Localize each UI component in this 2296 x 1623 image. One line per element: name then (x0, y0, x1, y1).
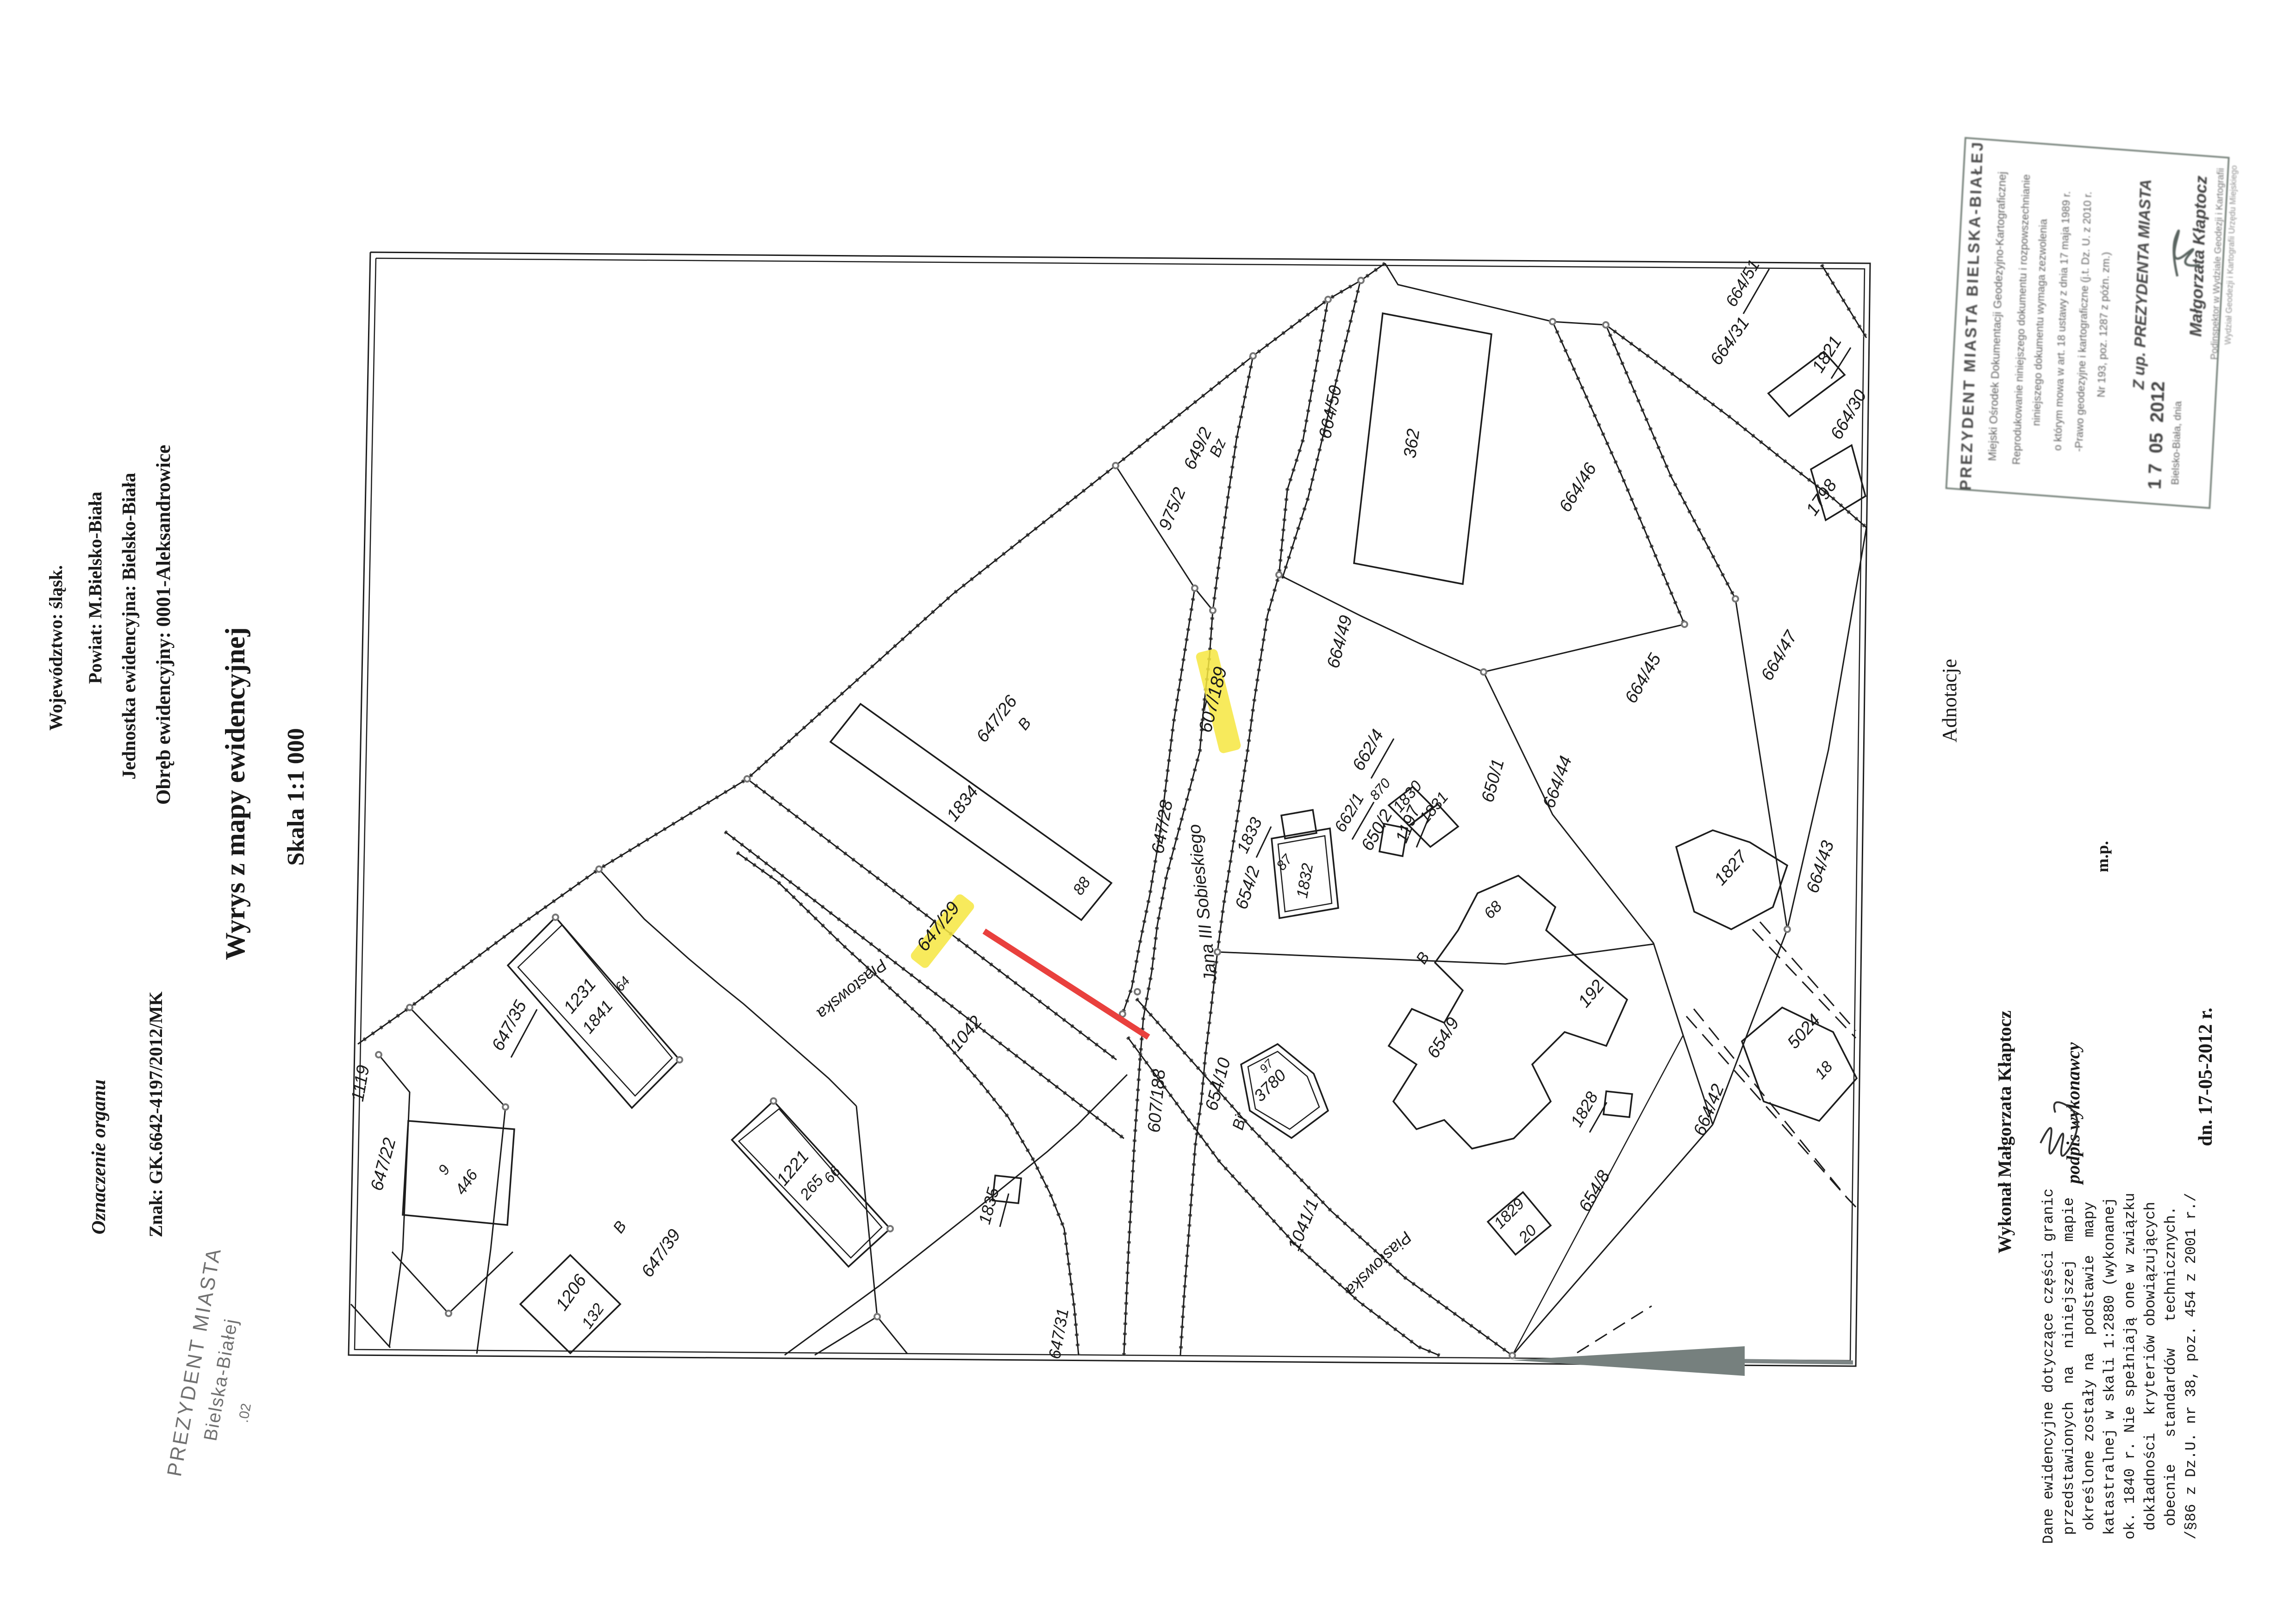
svg-text:B: B (610, 1218, 630, 1237)
svg-text:1832: 1832 (1293, 862, 1317, 899)
svg-text:m.p.: m.p. (2093, 841, 2112, 872)
svg-text:Wykonał Małgorzata Kłaptocz: Wykonał Małgorzata Kłaptocz (1994, 1010, 2015, 1253)
svg-text:określone zostały na podstawi: określone zostały na podstawie mapy (2081, 1202, 2098, 1531)
svg-text:Bielsko-Biała, dnia: Bielsko-Biała, dnia (2169, 401, 2184, 485)
svg-text:647/31: 647/31 (1045, 1307, 1072, 1361)
svg-text:192: 192 (1574, 976, 1608, 1012)
svg-text:64: 64 (612, 974, 633, 994)
svg-text:18: 18 (1811, 1058, 1836, 1083)
svg-text:Piastowska: Piastowska (1342, 1228, 1416, 1300)
svg-text:dn. 17-05-2012 r.: dn. 17-05-2012 r. (2195, 1007, 2216, 1146)
svg-text:975/2: 975/2 (1155, 485, 1190, 533)
svg-text:Znak: GK.6642-4197/2012/MK: Znak: GK.6642-4197/2012/MK (145, 991, 166, 1237)
svg-text:Piastowska: Piastowska (813, 955, 891, 1023)
svg-text:647/26: 647/26 (973, 691, 1021, 746)
svg-text:650/1: 650/1 (1478, 757, 1508, 805)
svg-text:607/188: 607/188 (1144, 1069, 1169, 1134)
svg-text:68: 68 (1480, 897, 1505, 922)
svg-text:1206: 1206 (552, 1271, 591, 1314)
svg-text:Jana III Sobieskiego: Jana III Sobieskiego (1185, 823, 1221, 983)
svg-text:132: 132 (578, 1300, 608, 1331)
svg-text:664/44: 664/44 (1539, 753, 1576, 811)
svg-text:B: B (1413, 949, 1433, 967)
svg-text:664/45: 664/45 (1621, 650, 1665, 706)
svg-text:Dane ewidencyjne dotyczące czę: Dane ewidencyjne dotyczące części granic (2040, 1188, 2057, 1544)
svg-text:87: 87 (1273, 852, 1296, 874)
svg-text:Wyrys z mapy ewidencyjnej: Wyrys z mapy ewidencyjnej (220, 627, 250, 960)
svg-text:664/51: 664/51 (1722, 256, 1764, 310)
svg-text:Skala 1:1 000: Skala 1:1 000 (283, 728, 309, 866)
svg-text:9: 9 (435, 1162, 453, 1178)
svg-text:446: 446 (452, 1166, 481, 1198)
svg-text:647/28: 647/28 (1148, 799, 1177, 855)
svg-text:ok. 1840 r. Nie spełniają one: ok. 1840 r. Nie spełniają one w związku (2121, 1193, 2139, 1540)
svg-text:654/8: 654/8 (1575, 1167, 1614, 1215)
svg-text:88: 88 (1070, 874, 1094, 898)
svg-text:1827: 1827 (1710, 846, 1752, 889)
svg-text:Małgorzata Kłaptocz: Małgorzata Kłaptocz (2186, 175, 2210, 337)
svg-text:niniejszego dokumentu wymaga z: niniejszego dokumentu wymaga zezwolenia (2030, 218, 2049, 426)
svg-text:1834: 1834 (943, 782, 982, 825)
svg-text:664/43: 664/43 (1803, 839, 1838, 896)
svg-text:Nr 193, poz. 1287 z późn. zm.): Nr 193, poz. 1287 z późn. zm.) (2095, 252, 2112, 398)
svg-text:dokładności kryteriów obowiąz: dokładności kryteriów obowiązujących (2142, 1202, 2159, 1531)
svg-text:1042: 1042 (946, 1012, 986, 1055)
svg-text:650/2: 650/2 (1358, 806, 1397, 854)
svg-text:katastralnej w skali 1:2880 (w: katastralnej w skali 1:2880 (wykonanej (2101, 1197, 2118, 1535)
svg-text:1 7 05 2012: 1 7 05 2012 (2145, 381, 2169, 490)
svg-text:654/2: 654/2 (1232, 864, 1264, 912)
svg-text:B: B (1014, 715, 1035, 734)
svg-text:o którym mowa w art. 18 ustawy: o którym mowa w art. 18 ustawy z dnia 17… (2051, 191, 2072, 451)
svg-text:1835: 1835 (975, 1185, 1003, 1226)
svg-text:Jednostka ewidencyjna: Bielsko: Jednostka ewidencyjna: Bielsko-Biała (118, 473, 139, 780)
svg-text:podpis wykonawcy: podpis wykonawcy (2063, 1042, 2084, 1185)
svg-text:-Prawo geodezyjne i kartografi: -Prawo geodezyjne i kartograficzne (j.t.… (2072, 191, 2094, 452)
svg-text:Obręb ewidencyjny: 0001-Aleksa: Obręb ewidencyjny: 0001-Aleksandrowice (153, 445, 175, 805)
svg-text:/§86 z Dz.U. nr 38, poz. 454 z: /§86 z Dz.U. nr 38, poz. 454 z 2001 r./ (2183, 1193, 2200, 1540)
svg-text:przedstawionych na niniejsze: przedstawionych na niniejszej mapie (2060, 1197, 2078, 1535)
svg-text:Oznaczenie organu: Oznaczenie organu (88, 1080, 110, 1235)
svg-text:Adnotacje: Adnotacje (1938, 659, 1961, 743)
svg-text:Województwo: śląsk.: Województwo: śląsk. (45, 565, 66, 731)
svg-text:PREZYDENT MIASTA BIELSKA-BIAŁE: PREZYDENT MIASTA BIELSKA-BIAŁEJ (1957, 140, 1986, 491)
svg-text:Z up. PREZYDENTA MIASTA: Z up. PREZYDENTA MIASTA (2130, 179, 2155, 391)
svg-text:.02: .02 (236, 1402, 254, 1424)
svg-text:664/42: 664/42 (1690, 1082, 1728, 1139)
svg-text:Powiat: M.Bielsko-Biała: Powiat: M.Bielsko-Biała (85, 491, 106, 684)
svg-text:1798: 1798 (1803, 476, 1841, 519)
svg-text:654/9: 654/9 (1423, 1014, 1463, 1062)
svg-text:664/49: 664/49 (1323, 613, 1356, 670)
svg-text:647/39: 647/39 (638, 1225, 685, 1281)
svg-text:664/47: 664/47 (1757, 627, 1801, 684)
svg-text:664/50: 664/50 (1316, 384, 1346, 440)
svg-text:1119: 1119 (348, 1063, 374, 1103)
svg-text:647/22: 647/22 (367, 1136, 400, 1193)
svg-text:647/35: 647/35 (488, 997, 531, 1054)
svg-text:870: 870 (1367, 776, 1394, 803)
svg-text:1041/1: 1041/1 (1285, 1196, 1323, 1254)
svg-text:Bi: Bi (1229, 1113, 1250, 1132)
svg-text:362: 362 (1400, 428, 1423, 460)
svg-text:obecnie standardów technic: obecnie standardów technicznych. (2162, 1206, 2179, 1526)
svg-text:664/31: 664/31 (1707, 313, 1753, 368)
svg-text:Miejski Ośrodek Dokumentacji G: Miejski Ośrodek Dokumentacji Geodezyjno-… (1986, 171, 2009, 461)
svg-text:1828: 1828 (1566, 1088, 1602, 1130)
svg-text:Wydział Geodezji i Kartografii: Wydział Geodezji i Kartografii Urzędu Mi… (2223, 165, 2239, 345)
svg-text:664/46: 664/46 (1555, 459, 1601, 516)
svg-text:Reprodukowanie niniejszego dok: Reprodukowanie niniejszego dokumentu i r… (2010, 174, 2032, 465)
svg-text:662/1: 662/1 (1330, 790, 1368, 835)
svg-text:5024: 5024 (1784, 1011, 1824, 1053)
svg-text:662/4: 662/4 (1349, 726, 1388, 774)
svg-text:664/30: 664/30 (1827, 386, 1870, 443)
svg-text:20: 20 (1515, 1221, 1540, 1246)
